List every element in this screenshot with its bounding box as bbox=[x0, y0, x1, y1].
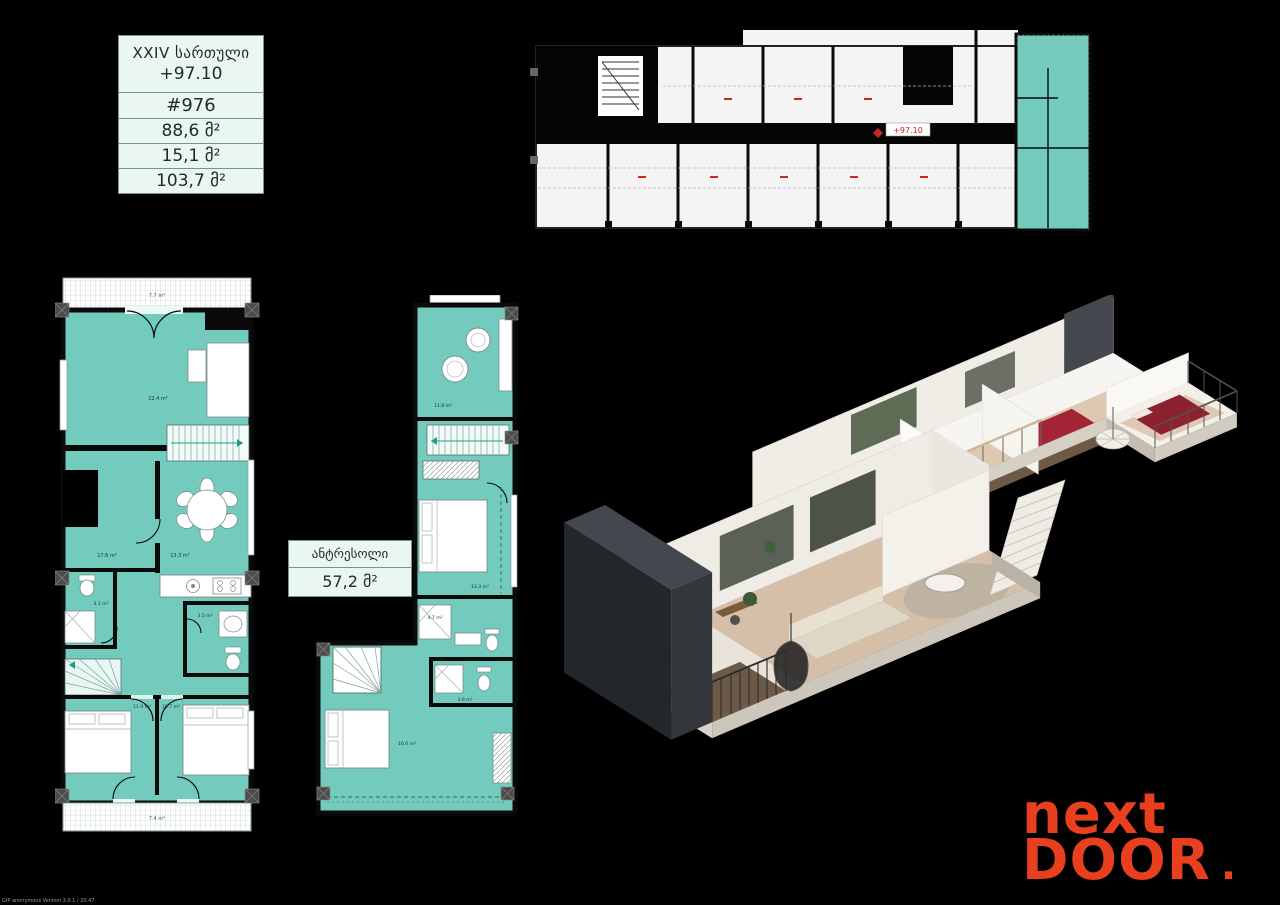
logo-line2: DOOR bbox=[1022, 838, 1211, 884]
level-marker-label: +97.10 bbox=[893, 126, 923, 135]
plant bbox=[764, 541, 776, 553]
living-area: 22.4 m² bbox=[148, 396, 168, 402]
balcony-bottom-area: 7.4 m² bbox=[149, 816, 165, 822]
balcony-bottom: 7.4 m² bbox=[63, 803, 251, 831]
total-area: 103,7 მ² bbox=[119, 168, 263, 193]
lower-bedroom-area: 16.0 m² bbox=[398, 741, 416, 747]
bedroom-right-area: 10.7 m² bbox=[162, 704, 180, 710]
kitchen-counter bbox=[160, 575, 251, 597]
nextdoor-logo: next DOOR. bbox=[1022, 792, 1237, 884]
apartment-body: 22.4 m² 17.6 m² 13.3 m² bbox=[60, 306, 254, 807]
winder-stairs bbox=[333, 647, 381, 693]
watermark-text: GIP anonymous Version 3.0.1 / 20.47 bbox=[2, 898, 95, 904]
stairs-lower bbox=[65, 659, 121, 695]
mezz-bathroom-area: 4.7 m² bbox=[427, 615, 442, 621]
overview-body bbox=[530, 30, 1018, 228]
unit-info-table: XXIV სართული +97.10 #976 88,6 მ² 15,1 მ²… bbox=[118, 35, 264, 194]
highlighted-unit bbox=[1016, 34, 1090, 230]
mezzanine-body: 11.8 m² 13.3 m² bbox=[318, 295, 517, 813]
unit-number: #976 bbox=[119, 92, 263, 118]
floor-overview-plan: +97.10 bbox=[528, 28, 1098, 240]
terrace-top: 7.7 m² bbox=[63, 278, 251, 310]
floor-row: XXIV სართული +97.10 bbox=[119, 36, 263, 92]
coffee-table-3d bbox=[925, 574, 965, 592]
main-level-plan: 7.7 m² 22.4 m² bbox=[55, 275, 260, 835]
bathroom-area: 3.1 m² bbox=[93, 601, 108, 607]
net-area: 88,6 მ² bbox=[119, 118, 263, 143]
sofa bbox=[207, 343, 249, 417]
wc-area: 3.5 m² bbox=[197, 613, 212, 619]
mezz-bedroom-area: 13.3 m² bbox=[471, 584, 489, 590]
terrace-top-area: 7.7 m² bbox=[149, 293, 165, 299]
page: XXIV სართული +97.10 #976 88,6 მ² 15,1 მ²… bbox=[0, 0, 1280, 905]
corridor bbox=[536, 123, 1018, 144]
plant bbox=[743, 592, 757, 606]
lounge-area: 11.8 m² bbox=[434, 403, 452, 409]
logo-dot: . bbox=[1221, 850, 1237, 883]
balcony-area: 15,1 მ² bbox=[119, 143, 263, 168]
elevation-value: +97.10 bbox=[119, 62, 263, 90]
hall-area: 17.6 m² bbox=[97, 553, 117, 559]
stairs-main bbox=[167, 425, 249, 461]
bedroom-left-area: 11.0 m² bbox=[133, 704, 151, 710]
mezzanine-plan: 11.8 m² 13.3 m² bbox=[315, 295, 525, 820]
shower-room-area: 3.9 m² bbox=[457, 697, 472, 703]
floor-label: XXIV სართული bbox=[119, 38, 263, 62]
dining-area: 13.3 m² bbox=[170, 553, 190, 559]
apartment-3d-render bbox=[545, 295, 1245, 775]
coffee-table bbox=[188, 350, 206, 382]
